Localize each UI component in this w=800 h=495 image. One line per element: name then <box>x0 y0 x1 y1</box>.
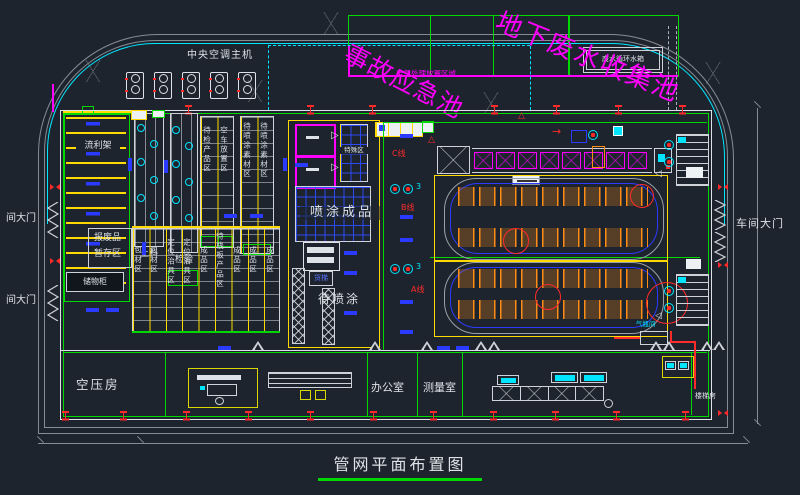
wall-tick <box>553 105 560 114</box>
gate-right-label: 车间大门 <box>736 218 784 230</box>
marker-triangle-icon: △ <box>518 112 525 121</box>
wall-tick <box>430 411 437 420</box>
gate-zigzag-icon <box>713 232 727 262</box>
arrow-left-icon: ◁ <box>655 170 662 179</box>
tool-box <box>315 390 326 400</box>
desk-bench <box>492 386 604 401</box>
flow-arrow <box>142 242 146 255</box>
door-mark-icon <box>488 341 500 350</box>
room-divider <box>462 352 463 417</box>
freight-lift <box>303 242 340 271</box>
line-a-label: A线 <box>411 286 424 295</box>
dim-tick <box>37 436 44 443</box>
column-label: 待栈板产品区 <box>216 232 224 289</box>
flow-arrow <box>283 158 287 171</box>
machine-row <box>458 187 648 206</box>
cyan-unit <box>613 126 623 136</box>
cyan-dashed-line <box>530 46 531 110</box>
room-divider <box>417 352 418 417</box>
stair-room-label: 楼梯房 <box>695 393 716 401</box>
fan-icon <box>664 140 674 150</box>
column-label: 待检产品区 <box>203 126 211 174</box>
turntable <box>503 228 529 254</box>
column-label: 包材区 <box>134 246 142 275</box>
fan-count: 3 <box>416 263 421 272</box>
wall-tick <box>307 105 314 114</box>
red-pipe <box>694 341 696 389</box>
fan-icon <box>390 184 400 194</box>
cyan-unit <box>678 137 686 143</box>
paint-booth <box>295 124 336 157</box>
wall-tick <box>62 411 69 420</box>
unit-box <box>207 384 237 396</box>
flow-arrow <box>218 346 231 350</box>
door-mark-icon <box>701 341 713 350</box>
rooms-wall <box>60 350 710 351</box>
gate-left-upper-label: 间大门 <box>6 213 36 224</box>
monitor <box>580 372 607 383</box>
to-paint-label: 待喷涂 <box>318 293 360 306</box>
cell-dot <box>379 125 385 131</box>
scrap-label-1: 报废品 <box>94 234 121 244</box>
storage-grid-lower <box>132 228 280 332</box>
fan-count: 3 <box>416 183 421 192</box>
column-label: 定位治具区 <box>167 238 175 286</box>
conveyor-panel <box>496 152 515 169</box>
wall-tick <box>120 411 127 420</box>
conveyor-panel <box>628 152 647 169</box>
roller <box>150 212 158 220</box>
arrow-left-icon: ◁ <box>655 312 662 321</box>
ac-unit <box>154 72 172 99</box>
wall-tick <box>613 411 620 420</box>
room-divider <box>165 352 166 417</box>
wall-tick <box>369 105 376 114</box>
gas-room-label: 气瓶间 <box>636 321 656 328</box>
roller <box>137 158 145 166</box>
sensor-box <box>571 130 587 143</box>
machine-row <box>458 228 648 247</box>
zone-line-green <box>383 122 384 350</box>
desk-cell <box>493 387 521 400</box>
construction-mark <box>80 60 106 82</box>
booth-tag <box>306 168 319 171</box>
roller <box>150 140 158 148</box>
hvac-label: 中央空调主机 <box>160 50 280 61</box>
wall-tick <box>682 411 689 420</box>
overhead-conveyor <box>472 148 652 173</box>
door-mark-icon <box>369 341 381 350</box>
wall-tick <box>491 105 498 114</box>
name-plate <box>686 259 701 269</box>
column-label: 成品区 <box>200 246 208 275</box>
column-label: 成品区 <box>233 246 241 275</box>
lift-label: 货梯 <box>310 275 332 283</box>
screen <box>501 378 516 383</box>
flow-arrow <box>437 346 450 350</box>
column-label: 待喷涂素材区 <box>243 122 251 179</box>
arrow-right-icon: → <box>552 126 561 137</box>
tool-box <box>300 390 311 400</box>
wall-tick <box>615 105 622 114</box>
fan-icon <box>403 264 413 274</box>
line-c-label: C线 <box>392 150 406 159</box>
gate-left-lower-label: 间大门 <box>6 295 36 306</box>
dim-tick <box>137 436 144 443</box>
screen <box>667 363 674 368</box>
construction-mark <box>700 62 726 84</box>
flow-arrow <box>456 346 469 350</box>
zone-line-green <box>383 122 707 123</box>
oven-box <box>592 146 605 168</box>
flow-arrow <box>344 251 357 255</box>
door-mark-icon <box>252 341 264 350</box>
tower-rack <box>292 268 305 344</box>
wall-joint-mark <box>718 410 728 417</box>
construction-mark <box>318 12 344 34</box>
marker-triangle-icon: △ <box>428 136 435 145</box>
fan-icon <box>664 303 674 313</box>
flow-arrow <box>295 163 308 167</box>
painted-goods-label: 喷涂成品 <box>300 206 384 220</box>
flow-arrow <box>344 271 357 275</box>
scrap-label-2: 暂存区 <box>94 250 121 260</box>
wall-tick <box>370 411 377 420</box>
cyan-unit <box>678 277 686 283</box>
compressor-room-label: 空压房 <box>76 378 120 392</box>
gas-area-label: 废气处理放置区域 <box>396 70 456 78</box>
unit-wheel <box>215 397 224 405</box>
conveyor-panel <box>540 152 559 169</box>
conveyor-panel <box>606 152 625 169</box>
lift-door: 货梯 <box>309 271 333 286</box>
booth-tag <box>306 136 319 139</box>
wall-tick <box>552 411 559 420</box>
wall-joint-mark <box>50 184 60 191</box>
wall-tick <box>245 411 252 420</box>
gate-zigzag-icon <box>713 200 727 230</box>
door-mark-icon <box>663 341 675 350</box>
title-underline <box>318 478 482 481</box>
fan-icon <box>588 130 598 140</box>
screen <box>584 375 604 381</box>
roller <box>150 176 158 184</box>
chair <box>604 399 613 408</box>
roller <box>185 142 193 150</box>
wall-tick <box>679 105 686 114</box>
gate-zigzag-icon <box>46 285 60 321</box>
red-pipe <box>614 337 640 339</box>
fan-icon <box>664 157 674 167</box>
desk-cell <box>521 387 549 400</box>
dimension-line-bottom <box>38 443 748 444</box>
grid-frame <box>132 331 280 333</box>
flow-arrow <box>128 158 132 171</box>
ac-unit <box>126 72 144 99</box>
flow-arrow <box>106 308 119 312</box>
column-label: 空车放置区 <box>220 126 228 174</box>
conveyor-panel <box>518 152 537 169</box>
flow-arrow <box>400 238 413 242</box>
loading-platform <box>131 110 147 120</box>
flow-arrow <box>400 134 413 138</box>
cyan-dashed-line <box>268 45 530 46</box>
door-mark-icon <box>650 341 662 350</box>
conveyor-panel <box>474 152 493 169</box>
dim-tick <box>743 436 750 443</box>
wall-tick <box>183 411 190 420</box>
column-label: 成品区 <box>266 246 274 275</box>
fan-icon <box>403 184 413 194</box>
screen <box>555 375 575 381</box>
cabinet: 储物柜 <box>66 272 124 292</box>
cad-floorplan-drawing: 废水循环水箱 事故应急池 地下废水收集池 废气处理放置区域 中央空调主机 <box>0 0 800 495</box>
wall-joint-mark <box>718 262 728 269</box>
roller <box>137 124 145 132</box>
drawing-title: 管网平面布置图 <box>320 456 480 474</box>
gate-zigzag-icon <box>46 202 60 238</box>
roller <box>172 160 180 168</box>
door-mark-icon <box>713 341 725 350</box>
rooms-wall-green <box>63 352 707 353</box>
flow-arrow <box>224 214 237 218</box>
cyan-unit <box>200 386 205 390</box>
wall-tick <box>307 411 314 420</box>
flow-arrow <box>250 214 263 218</box>
office-label: 办公室 <box>371 382 404 394</box>
flow-rack-label: 流利架 <box>76 142 120 152</box>
fan-icon <box>664 286 674 296</box>
roller <box>185 178 193 186</box>
roller <box>172 126 180 134</box>
ac-unit <box>238 72 256 99</box>
wall-tick <box>490 411 497 420</box>
workbench <box>268 372 352 388</box>
door-mark-icon <box>475 341 487 350</box>
column-label: 定位治具区 <box>183 238 191 286</box>
roller <box>137 194 145 202</box>
column-label: 待喷涂素材区 <box>260 122 268 179</box>
conveyor-end-station <box>437 146 470 174</box>
flow-arrow <box>400 215 413 219</box>
conveyor-panel <box>562 152 581 169</box>
magenta-riser <box>52 84 54 112</box>
fan-icon <box>390 264 400 274</box>
room-divider <box>367 352 368 417</box>
ac-unit <box>182 72 200 99</box>
special-zone-label: 特殊区 <box>338 147 370 154</box>
flow-arrow <box>86 308 99 312</box>
turntable <box>630 184 654 208</box>
lift-band <box>307 257 334 263</box>
desk-cell <box>549 387 577 400</box>
flow-arrow <box>400 330 413 334</box>
roller <box>185 214 193 222</box>
roller <box>172 196 180 204</box>
lift-band <box>307 247 334 253</box>
ac-unit <box>210 72 228 99</box>
column-label: 包材区 <box>150 246 158 275</box>
cabinet-label: 储物柜 <box>67 278 123 287</box>
screen <box>680 363 687 368</box>
name-plate <box>686 167 703 178</box>
monitor <box>497 375 519 385</box>
wall-joint-mark <box>50 258 60 265</box>
compressor-unit <box>188 368 258 408</box>
paint-booth <box>295 156 336 189</box>
line-b-label: B线 <box>401 204 415 213</box>
flow-arrow <box>400 300 413 304</box>
measure-room-label: 测量室 <box>423 382 456 394</box>
dim-tick <box>754 101 761 108</box>
dimension-line-right <box>757 108 758 424</box>
wall-joint-mark <box>718 184 728 191</box>
loading-platform <box>152 110 165 118</box>
arrow-right-icon: ▷ <box>331 163 339 173</box>
turntable <box>535 284 561 310</box>
column-label: 成品区 <box>249 246 257 275</box>
unit-bar <box>197 375 241 380</box>
monitor <box>551 372 578 383</box>
door-mark-icon <box>421 341 433 350</box>
arrow-right-icon: ▷ <box>331 131 339 141</box>
desk-cell <box>576 387 603 400</box>
flow-arrow <box>344 311 357 315</box>
control-cabinet <box>662 356 694 378</box>
flow-arrow <box>164 160 168 173</box>
